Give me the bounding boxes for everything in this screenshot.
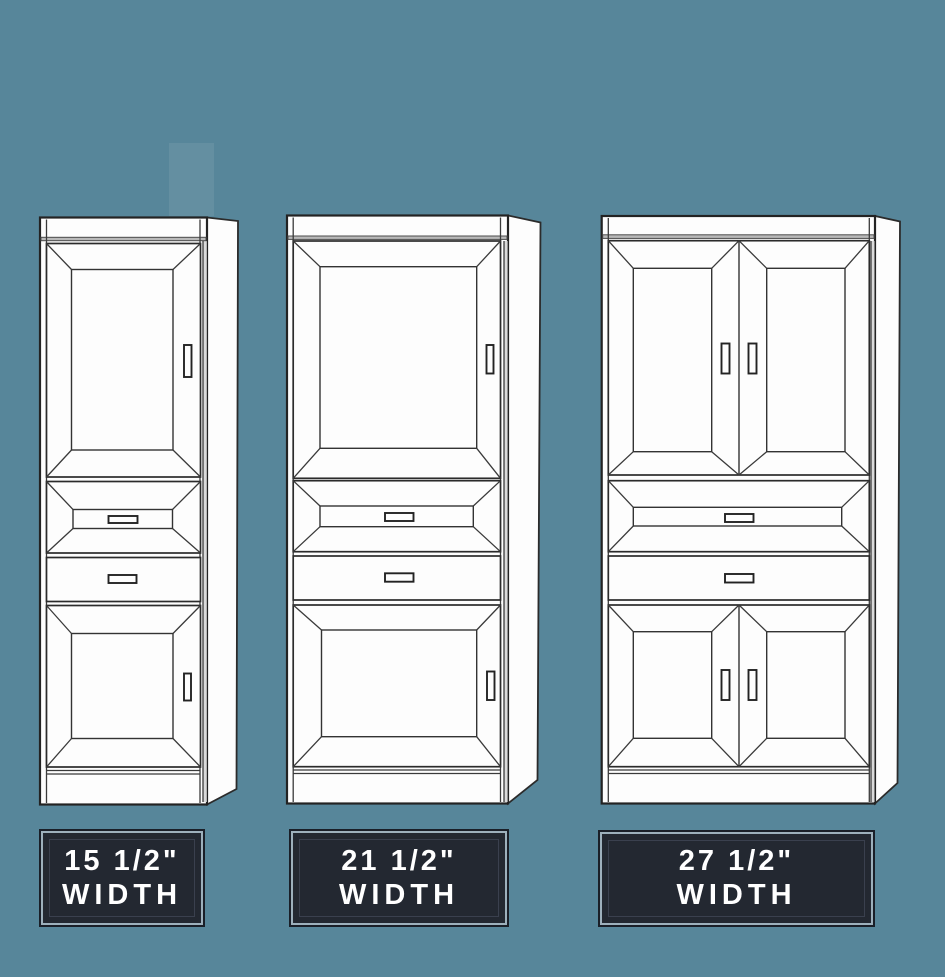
lower-door-handle xyxy=(487,672,495,701)
flat-drawer-handle xyxy=(385,573,414,581)
beveled-drawer-handle xyxy=(385,513,414,521)
width-label-15: 15 1/2" WIDTH xyxy=(39,829,205,927)
top-rail-trim xyxy=(41,237,206,240)
cabinet-drawing-15 xyxy=(40,218,238,805)
width-caption: WIDTH xyxy=(62,881,182,910)
width-value: 21 1/2" xyxy=(341,847,456,876)
upper-double-doors xyxy=(608,241,869,475)
width-label-27: 27 1/2" WIDTH xyxy=(598,830,875,927)
upper-right-door-handle xyxy=(749,344,757,374)
width-label-21: 21 1/2" WIDTH xyxy=(289,829,509,927)
upper-door-handle xyxy=(487,345,494,374)
top-rail-trim xyxy=(288,236,507,239)
width-value: 15 1/2" xyxy=(64,847,179,876)
beveled-drawer-handle xyxy=(725,514,754,522)
side-panel xyxy=(207,218,238,805)
lower-right-door-handle xyxy=(749,670,757,700)
lower-door xyxy=(293,605,500,767)
width-caption: WIDTH xyxy=(676,881,796,910)
flat-drawer-handle xyxy=(109,575,137,583)
top-rail-trim xyxy=(603,235,874,239)
ghost-artifact xyxy=(169,143,214,216)
right-stile-shade xyxy=(504,241,507,802)
width-caption: WIDTH xyxy=(339,881,459,910)
lower-left-door-handle xyxy=(722,670,730,700)
upper-door xyxy=(293,241,500,478)
lower-double-doors xyxy=(608,605,869,767)
upper-left-door-handle xyxy=(722,344,730,374)
upper-door-handle xyxy=(184,345,192,377)
lower-door xyxy=(47,606,201,768)
upper-door xyxy=(47,244,201,478)
beveled-drawer-handle xyxy=(109,516,138,523)
cabinet-drawing-27 xyxy=(602,216,900,804)
side-panel xyxy=(508,216,541,804)
right-stile-shade xyxy=(871,241,874,802)
width-value: 27 1/2" xyxy=(679,847,794,876)
side-panel xyxy=(875,216,900,804)
flat-drawer-handle xyxy=(725,574,754,583)
lower-door-handle xyxy=(184,674,191,701)
cabinet-drawing-21 xyxy=(287,216,541,804)
cabinet-sizing-diagram: 15 1/2" WIDTH 21 1/2" WIDTH 27 1/2" WIDT… xyxy=(0,0,945,977)
